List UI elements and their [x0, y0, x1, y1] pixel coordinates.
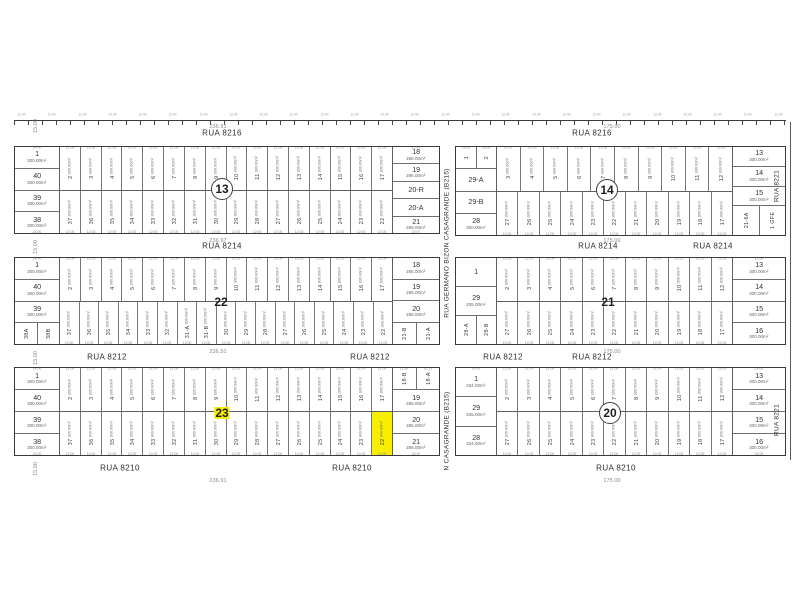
lot-1[interactable]: 24.001300.00m² [15, 147, 59, 169]
lot-25[interactable]: 12.0025 300.00m² [310, 412, 331, 455]
lot-31-A[interactable]: 12.0031-A 300.00m² [178, 302, 198, 345]
lot-area: 300.00m² [380, 421, 384, 439]
lot-11[interactable]: 12.0011 300.00m² [690, 258, 711, 301]
lot-15[interactable]: 12.0015 300.00m² [331, 368, 352, 411]
lot-29-B[interactable]: 29-B [456, 192, 496, 214]
lot-35[interactable]: 12.0035 300.00m² [99, 302, 119, 345]
lot-19[interactable]: 12.0019 300.00m² [669, 412, 690, 455]
lot-18-B[interactable]: 11.2018-B [393, 368, 417, 389]
lot-12[interactable]: 12.0012 300.00m² [268, 147, 289, 190]
lot-text: 27 300.00m² [502, 201, 512, 225]
lot-28-A[interactable]: 28-A [456, 316, 477, 344]
lot-text: 23 300.00m² [356, 421, 366, 445]
lot-14[interactable]: 12.0014 300.00m² [310, 147, 331, 190]
lot-21[interactable]: 12.0021 300.00m² [626, 192, 647, 236]
lot-area: 300.00m² [213, 269, 217, 287]
lot-width-dim: 12.00 [315, 231, 324, 234]
lot-40[interactable]: 40300.00m² [15, 390, 59, 412]
lot-2[interactable]: 12.002 300.00m² [497, 258, 518, 301]
lot-number: 22 [380, 328, 386, 335]
lot-38[interactable]: 38300.00m²24.00 [15, 434, 59, 455]
lot-area: 300.00m² [263, 311, 267, 329]
lot-area: 300.00m² [276, 267, 280, 285]
tick-dim-label: 12.00 [653, 113, 661, 116]
lot-number: 28 [254, 217, 260, 224]
lot-22[interactable]: 12.0022 300.00m² [372, 191, 392, 234]
lot-14[interactable]: 14300.00m² [733, 280, 785, 302]
lot-20[interactable]: 12.0020 300.00m² [647, 412, 668, 455]
lot-28[interactable]: 12.0028 300.00m² [247, 412, 268, 455]
lot-31[interactable]: 12.0031 300.00m² [185, 412, 206, 455]
lot-24[interactable]: 12.0024 300.00m² [331, 412, 352, 455]
tick-dim-label: 12.00 [260, 113, 268, 116]
lot-13[interactable]: 12.0013 300.00m² [289, 258, 310, 301]
lot-13[interactable]: 13300.00m² [733, 147, 785, 167]
lot-12[interactable]: 12.0012 300.00m² [712, 368, 732, 411]
lot-area: 300.00m² [88, 158, 92, 176]
lot-text: 25 300.00m² [315, 421, 325, 445]
lot-20[interactable]: 12.0020 300.00m² [647, 192, 668, 236]
lot-11[interactable]: 12.0011 300.00m² [247, 147, 268, 190]
lot-width-dim: 12.00 [241, 342, 250, 345]
lot-25[interactable]: 12.0025 300.00m² [310, 191, 331, 234]
lot-number: 26 [526, 328, 532, 335]
lot-area: 300.00m² [296, 200, 300, 218]
lot-24[interactable]: 12.0024 300.00m² [561, 302, 582, 345]
lot-25[interactable]: 12.0025 300.00m² [540, 192, 561, 236]
lot-number: 5 [569, 397, 575, 400]
lot-26[interactable]: 12.0026 300.00m² [518, 302, 539, 345]
lot-19[interactable]: 12.0019 300.00m² [669, 192, 690, 236]
lot-20[interactable]: 12.0020 300.00m² [647, 302, 668, 345]
lot-number: 9 [213, 397, 219, 400]
lot-33[interactable]: 12.0033 300.00m² [143, 191, 164, 234]
lot-number: 15 [755, 416, 763, 423]
lot-32[interactable]: 12.0032 300.00m² [164, 412, 185, 455]
lot-width-dim: 12.00 [357, 453, 366, 456]
lot-37[interactable]: 12.0037 300.00m² [60, 412, 81, 455]
lot-text: 2 300.00m² [502, 379, 512, 400]
lot-area: 300.00m² [749, 313, 768, 318]
lot-13[interactable]: 12.0013 300.00m² [289, 147, 310, 190]
lot-12[interactable]: 12.0012 300.00m² [709, 147, 732, 191]
lot-36[interactable]: 12.0036 300.00m² [80, 302, 100, 345]
lot-text: 3 300.00m² [86, 269, 96, 290]
lot-20-R[interactable]: 20-R [393, 182, 439, 199]
lot-text: 22 300.00m² [377, 200, 387, 224]
lot-35[interactable]: 12.0035 300.00m² [102, 191, 123, 234]
lot-19[interactable]: 12.0019 300.00m² [669, 302, 690, 345]
lot-number: 18 [412, 148, 420, 155]
lot-number: 3 [88, 397, 94, 400]
lot-16[interactable]: 12.0016 300.00m² [351, 258, 372, 301]
lot-text: 13 300.00m² [294, 267, 304, 291]
lot-text: 5 300.00m² [128, 158, 138, 179]
lot-number: 29 [233, 217, 239, 224]
lot-width-dim: 12.00 [66, 231, 75, 234]
lot-19[interactable]: 19286.00m² [393, 164, 439, 181]
lot-area: 300.00m² [68, 269, 72, 287]
lot-number: 19 [412, 166, 420, 173]
lot-18[interactable]: 18285.00m² [393, 258, 439, 280]
lot-width-dim: 12.00 [107, 231, 116, 234]
lot-20[interactable]: 20286.00m² [393, 412, 439, 434]
lot-26[interactable]: 12.0026 300.00m² [518, 192, 539, 236]
lot-21[interactable]: 21286.00m²22.97 [393, 217, 439, 233]
lot-width-dim: 12.00 [632, 342, 641, 345]
lot-text: 6 300.00m² [148, 269, 158, 290]
lot-29-A[interactable]: 29-A [456, 169, 496, 191]
lot-15[interactable]: 12.0015 300.00m² [331, 147, 352, 190]
lot-16[interactable]: 12.0016 300.00m² [351, 368, 372, 411]
lot-21[interactable]: 12.0021 300.00m² [626, 412, 647, 455]
lot-17[interactable]: 12.0017 300.00m² [372, 368, 392, 411]
lot-area: 300.00m² [505, 421, 509, 439]
lot-31[interactable]: 12.0031 300.00m² [185, 191, 206, 234]
lot-number: 1 [474, 375, 478, 382]
lot-text: 7 300.00m² [169, 379, 179, 400]
lot-27[interactable]: 12.0027 300.00m² [497, 412, 518, 455]
lot-width-dim: 15.00 [461, 147, 470, 150]
lot-width-dim: 12.00 [163, 342, 172, 345]
lot-29[interactable]: 12.0029 300.00m² [236, 302, 256, 345]
lot-13[interactable]: 12.5013300.00m² [733, 258, 785, 280]
lot-area: 286.00m² [406, 446, 425, 451]
lot-3[interactable]: 12.003 300.00m² [81, 147, 102, 190]
dimension-label: 15.00 [33, 119, 39, 133]
lot-21[interactable]: 12.0021 300.00m² [626, 302, 647, 345]
lot-21-6A[interactable]: 21-6A [733, 206, 760, 235]
lot-12[interactable]: 12.0012 300.00m² [712, 258, 732, 301]
lot-9[interactable]: 12.009 300.00m² [206, 368, 227, 411]
lot-text: 27 300.00m² [502, 421, 512, 445]
lot-width-dim: 12.00 [378, 368, 387, 371]
lot-number: 17 [379, 285, 385, 292]
lot-area: 300.00m² [126, 311, 130, 329]
lot-22[interactable]: 12.0022 300.00m² [372, 412, 392, 455]
lot-16[interactable]: 16300.00m²24.00 [733, 434, 785, 455]
lot-9[interactable]: 12.009 300.00m² [639, 147, 663, 191]
lot-5[interactable]: 12.005 300.00m² [544, 147, 568, 191]
lot-area: 300.00m² [213, 200, 217, 218]
lot-24[interactable]: 12.0024 300.00m² [561, 412, 582, 455]
lot-8[interactable]: 12.008 300.00m² [185, 147, 206, 190]
lot-text: 7 300.00m² [610, 379, 620, 400]
lot-1[interactable]: 20.001334.00m² [456, 368, 496, 397]
block-21: 129335.00m²28-A28-B12.002 300.00m²12.003… [455, 257, 786, 345]
lot-text: 4 300.00m² [545, 269, 555, 290]
lot-text: 1 [461, 156, 471, 159]
lot-27[interactable]: 12.0027 300.00m² [497, 192, 518, 236]
dimension-label: 236.91 [209, 478, 226, 484]
lot-width-dim: 12.00 [610, 342, 619, 345]
lot-number: 12 [718, 174, 724, 181]
lot-4[interactable]: 12.004 300.00m² [102, 147, 123, 190]
lot-15[interactable]: 12.0015 300.00m² [331, 258, 352, 301]
lot-number: 29 [243, 328, 249, 335]
lot-40[interactable]: 40300.00m² [15, 169, 59, 191]
lot-28[interactable]: 28300.00m² [456, 214, 496, 235]
lot-text: 36 300.00m² [86, 421, 96, 445]
lot-37[interactable]: 12.0037 300.00m² [60, 191, 81, 234]
lot-5[interactable]: 12.005 300.00m² [561, 368, 582, 411]
lot-area: 300.00m² [529, 158, 533, 176]
lot-13[interactable]: 12.0013 300.00m² [289, 368, 310, 411]
lot-22[interactable]: 12.0022 300.00m² [374, 302, 393, 345]
lot-20[interactable]: 20286.00m² [393, 301, 439, 323]
lot-number: 27 [282, 328, 288, 335]
lot-32[interactable]: 12.0032 300.00m² [164, 191, 185, 234]
lot-28[interactable]: 12.0028 300.00m² [247, 191, 268, 234]
lot-17[interactable]: 12.0017 300.00m² [712, 302, 732, 345]
lot-6[interactable]: 12.006 300.00m² [143, 258, 164, 301]
lot-text: 17 300.00m² [717, 311, 727, 335]
lot-text: 6 300.00m² [148, 158, 158, 179]
lot-number: 22 [379, 439, 385, 446]
lot-14[interactable]: 12.0014 300.00m² [310, 368, 331, 411]
lot-text: 9 300.00m² [653, 379, 663, 400]
dimension-label: 15.00 [33, 240, 39, 254]
lot-5[interactable]: 12.005 300.00m² [122, 258, 143, 301]
lot-9[interactable]: 12.009 300.00m² [647, 368, 668, 411]
lot-38[interactable]: 38300.00m²24.00 [15, 212, 59, 233]
lot-text: 11 300.00m² [252, 156, 262, 180]
lot-1 GFE[interactable]: 1 GFE [760, 206, 786, 235]
lot-5[interactable]: 12.005 300.00m² [122, 147, 143, 190]
lot-26[interactable]: 12.0026 300.00m² [289, 412, 310, 455]
lot-29[interactable]: 29335.00m² [456, 287, 496, 316]
tick-dim-label: 12.00 [532, 113, 540, 116]
lot-38B[interactable]: 38B [38, 323, 60, 344]
lot-2[interactable]: 12.002 300.00m² [60, 368, 81, 411]
lot-40[interactable]: 40300.00m² [15, 280, 59, 302]
lot-25[interactable]: 12.0025 300.00m² [315, 302, 335, 345]
lot-area: 300.00m² [109, 421, 113, 439]
lot-area: 300.00m² [577, 158, 581, 176]
lot-28-B[interactable]: 28-B [477, 316, 497, 344]
lot-15[interactable]: 15300.00m² [733, 302, 785, 324]
lot-24[interactable]: 12.0024 300.00m² [331, 191, 352, 234]
lot-area: 300.00m² [276, 421, 280, 439]
lot-27[interactable]: 12.0027 300.00m² [497, 302, 518, 345]
lot-pair: 11.2018-B11.7118-A [393, 368, 439, 390]
lot-34[interactable]: 12.0034 300.00m² [122, 191, 143, 234]
lot-area: 300.00m² [548, 379, 552, 397]
lot-26[interactable]: 12.0026 300.00m² [518, 412, 539, 455]
lot-12[interactable]: 12.0012 300.00m² [268, 368, 289, 411]
lot-6[interactable]: 12.006 300.00m² [143, 368, 164, 411]
lot-24[interactable]: 12.0024 300.00m² [334, 302, 354, 345]
lot-4[interactable]: 12.004 300.00m² [521, 147, 545, 191]
lot-18[interactable]: 22.9718286.00m² [393, 147, 439, 164]
lot-area: 300.00m² [88, 200, 92, 218]
lot-33[interactable]: 12.0033 300.00m² [143, 412, 164, 455]
lot-13[interactable]: 24.0013300.00m² [733, 368, 785, 390]
lot-19[interactable]: 19286.00m² [393, 390, 439, 412]
street-label-vertical: RUA 8221 [774, 404, 781, 436]
lot-number: 31-A [184, 325, 190, 338]
lot-18-A[interactable]: 11.7118-A [417, 368, 440, 389]
tick-dim-label: 12.00 [744, 113, 752, 116]
lot-1[interactable]: 1 [456, 258, 496, 287]
lot-11[interactable]: 12.0011 300.00m² [686, 147, 710, 191]
lot-11[interactable]: 12.0011 300.00m² [690, 368, 711, 411]
lot-number: 4 [529, 176, 535, 179]
lot-9[interactable]: 12.009 300.00m² [647, 258, 668, 301]
lot-10[interactable]: 12.0010 300.00m² [669, 368, 690, 411]
lot-width-dim: 12.00 [170, 368, 179, 371]
lot-area: 300.00m² [184, 308, 188, 326]
lot-area: 300.00m² [27, 159, 46, 164]
lot-2[interactable]: 12.002 300.00m² [497, 368, 518, 411]
lot-8[interactable]: 12.008 300.00m² [185, 368, 206, 411]
lot-37[interactable]: 12.0037 300.00m² [60, 302, 80, 345]
lot-29[interactable]: 29335.00m² [456, 397, 496, 426]
lot-8[interactable]: 12.008 300.00m² [615, 147, 639, 191]
lot-width-dim: 12.00 [503, 233, 512, 236]
lot-25[interactable]: 12.0025 300.00m² [540, 412, 561, 455]
lot-28[interactable]: 28334.00m² [456, 427, 496, 455]
lot-28[interactable]: 12.0028 300.00m² [256, 302, 276, 345]
lot-8[interactable]: 12.008 300.00m² [626, 368, 647, 411]
lot-width-dim: 12.00 [546, 258, 555, 261]
lot-area: 300.00m² [612, 421, 616, 439]
lot-23[interactable]: 12.0023 300.00m² [351, 412, 372, 455]
lot-39[interactable]: 39300.00m² [15, 191, 59, 213]
lot-2[interactable]: 12.002 300.00m² [60, 147, 81, 190]
lot-5[interactable]: 12.005 300.00m² [122, 368, 143, 411]
lot-16[interactable]: 16300.00m² [733, 323, 785, 344]
lot-3[interactable]: 12.003 300.00m² [518, 368, 539, 411]
lot-number: 40 [33, 394, 41, 401]
lot-number: 20 [654, 219, 660, 226]
lot-12[interactable]: 12.0012 300.00m² [268, 258, 289, 301]
lot-text: 18-B [399, 372, 409, 385]
lot-35[interactable]: 12.0035 300.00m² [102, 412, 123, 455]
lot-number: 13 [296, 174, 302, 181]
lot-8[interactable]: 12.008 300.00m² [185, 258, 206, 301]
lot-36[interactable]: 12.0036 300.00m² [81, 191, 102, 234]
lot-width-dim: 12.00 [674, 368, 683, 371]
lot-34[interactable]: 12.0034 300.00m² [119, 302, 139, 345]
lot-7[interactable]: 12.007 300.00m² [164, 258, 185, 301]
lot-21[interactable]: 21286.00m²22.97 [393, 434, 439, 455]
lot-11[interactable]: 12.0011 300.00m² [247, 258, 268, 301]
lot-7[interactable]: 12.007 300.00m² [164, 147, 185, 190]
lot-36[interactable]: 12.0036 300.00m² [81, 412, 102, 455]
lot-area: 300.00m² [27, 446, 46, 451]
lot-3[interactable]: 12.003 300.00m² [518, 258, 539, 301]
lot-23[interactable]: 12.0023 300.00m² [351, 191, 372, 234]
lot-width-dim: 12.00 [674, 453, 683, 456]
lot-width-dim: 12.00 [674, 233, 683, 236]
lot-1[interactable]: 24.001300.00m² [15, 258, 59, 280]
lot-17[interactable]: 12.0017 300.00m² [372, 147, 392, 190]
lot-19[interactable]: 19286.00m² [393, 280, 439, 302]
lot-area: 300.00m² [172, 379, 176, 397]
lot-1[interactable]: 24.001300.00m² [15, 368, 59, 390]
lot-17[interactable]: 12.0017 300.00m² [372, 258, 392, 301]
lot-3[interactable]: 12.003 300.00m² [81, 368, 102, 411]
lot-10[interactable]: 12.0010 300.00m² [669, 258, 690, 301]
lot-text: 3 300.00m² [86, 379, 96, 400]
lot-number: 26 [526, 219, 532, 226]
lot-number: 29-B [468, 199, 483, 206]
lot-area: 300.00m² [718, 157, 722, 175]
lot-14[interactable]: 12.0014 300.00m² [310, 258, 331, 301]
lot-3[interactable]: 12.003 300.00m² [497, 147, 521, 191]
lot-1[interactable]: 15.001 [456, 147, 477, 168]
lot-area: 300.00m² [172, 421, 176, 439]
lot-10[interactable]: 12.0010 300.00m² [662, 147, 686, 191]
lot-text: 26 300.00m² [524, 421, 534, 445]
lot-text: 9 300.00m² [211, 269, 221, 290]
lot-4[interactable]: 12.004 300.00m² [540, 258, 561, 301]
lot-number: 16 [755, 438, 763, 445]
lot-8[interactable]: 12.008 300.00m² [626, 258, 647, 301]
lot-area: 300.00m² [27, 313, 46, 318]
lot-23[interactable]: 12.0023 300.00m² [354, 302, 374, 345]
lot-24[interactable]: 12.0024 300.00m² [561, 192, 582, 236]
lot-10[interactable]: 12.0010 300.00m² [227, 258, 248, 301]
lot-17[interactable]: 12.0017 300.00m² [712, 412, 732, 455]
lot-17[interactable]: 12.0017 300.00m² [712, 192, 732, 236]
lot-5[interactable]: 12.005 300.00m² [561, 258, 582, 301]
lot-27[interactable]: 12.0027 300.00m² [276, 302, 296, 345]
lot-39[interactable]: 39300.00m² [15, 302, 59, 324]
lot-18[interactable]: 12.0018 300.00m² [690, 412, 711, 455]
lot-width-dim: 12.00 [716, 147, 725, 150]
lot-32[interactable]: 12.0032 300.00m² [158, 302, 178, 345]
lot-26[interactable]: 12.0026 300.00m² [295, 302, 315, 345]
lot-25[interactable]: 12.0025 300.00m² [540, 302, 561, 345]
lot-6[interactable]: 12.006 300.00m² [143, 147, 164, 190]
lot-width-dim: 12.00 [253, 453, 262, 456]
lot-width-dim: 12.00 [190, 147, 199, 150]
lot-text: 36 300.00m² [86, 200, 96, 224]
lot-20-A[interactable]: 20-A [393, 199, 439, 216]
lot-2[interactable]: 12.002 300.00m² [60, 258, 81, 301]
lot-34[interactable]: 12.0034 300.00m² [122, 412, 143, 455]
lot-text: 6 300.00m² [574, 158, 584, 179]
lot-11[interactable]: 12.0011 300.00m² [247, 368, 268, 411]
lot-6[interactable]: 12.006 300.00m² [568, 147, 592, 191]
lot-10[interactable]: 12.0010 300.00m² [227, 368, 248, 411]
lot-27[interactable]: 12.0027 300.00m² [268, 412, 289, 455]
lot-text: 25 300.00m² [319, 311, 329, 335]
lot-21-A[interactable]: 21-A [417, 323, 440, 344]
lot-2[interactable]: 16.002 [477, 147, 497, 168]
lot-26[interactable]: 12.0026 300.00m² [289, 191, 310, 234]
lot-27[interactable]: 12.0027 300.00m² [268, 191, 289, 234]
lot-33[interactable]: 12.0033 300.00m² [138, 302, 158, 345]
lot-number: 25 [321, 328, 327, 335]
lot-21-B[interactable]: 21-B [393, 323, 417, 344]
lot-number: 7 [171, 175, 177, 178]
lot-7[interactable]: 12.007 300.00m² [164, 368, 185, 411]
lot-area: 300.00m² [749, 446, 768, 451]
lot-18[interactable]: 12.0018 300.00m² [690, 192, 711, 236]
lot-18[interactable]: 12.0018 300.00m² [690, 302, 711, 345]
lot-3[interactable]: 12.003 300.00m² [81, 258, 102, 301]
lot-39[interactable]: 39300.00m² [15, 412, 59, 434]
lot-text: 3 300.00m² [524, 269, 534, 290]
lot-4[interactable]: 12.004 300.00m² [540, 368, 561, 411]
lot-4[interactable]: 12.004 300.00m² [102, 368, 123, 411]
lot-4[interactable]: 12.004 300.00m² [102, 258, 123, 301]
lot-38A[interactable]: 38A [15, 323, 38, 344]
lot-16[interactable]: 12.0016 300.00m² [351, 147, 372, 190]
